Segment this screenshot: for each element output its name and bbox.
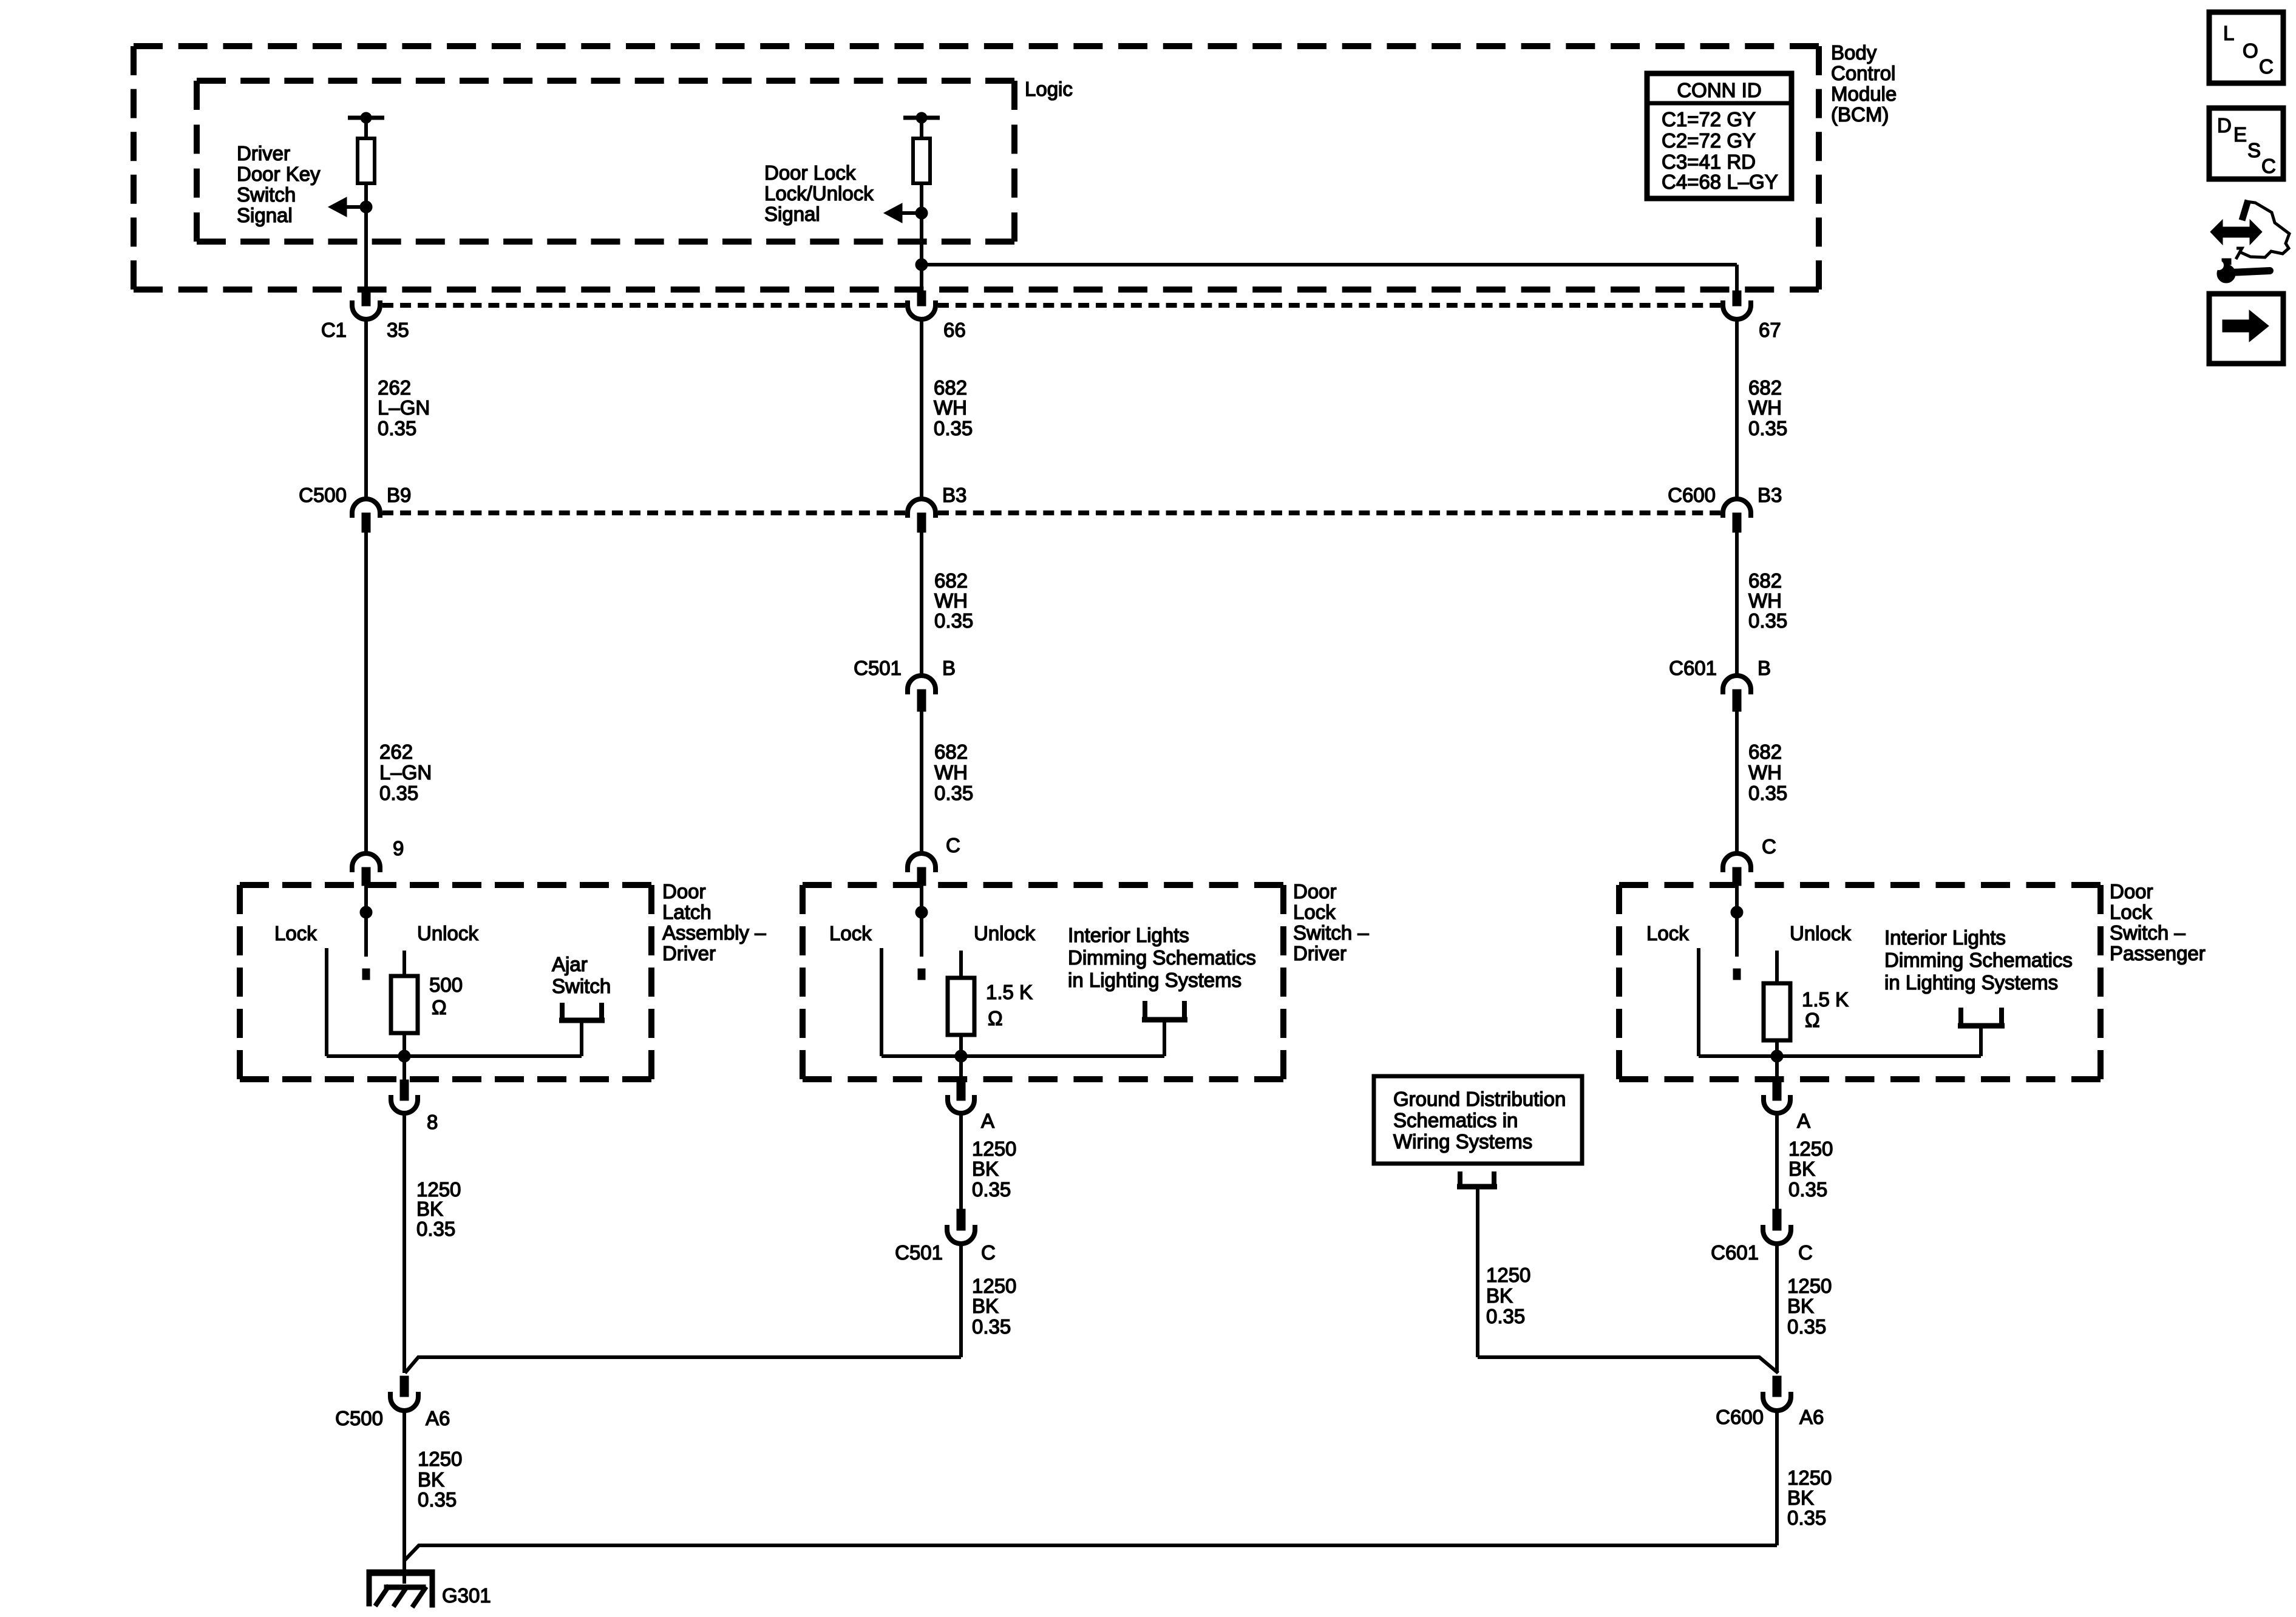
svg-text:0.35: 0.35 [934, 609, 973, 632]
svg-text:C601: C601 [1669, 657, 1717, 679]
svg-text:Unlock: Unlock [974, 922, 1035, 944]
svg-text:1250: 1250 [1486, 1264, 1530, 1286]
svg-text:Door Key: Door Key [237, 163, 321, 185]
svg-text:A: A [981, 1110, 994, 1132]
svg-text:Switch: Switch [552, 975, 611, 997]
svg-text:682: 682 [1748, 741, 1782, 763]
svg-text:1250: 1250 [1787, 1275, 1832, 1297]
svg-text:Passenger: Passenger [2110, 942, 2206, 964]
svg-text:WH: WH [1748, 396, 1782, 419]
svg-text:C501: C501 [895, 1241, 943, 1264]
svg-text:262: 262 [378, 376, 411, 399]
svg-text:C601: C601 [1711, 1241, 1759, 1264]
svg-text:L–GN: L–GN [379, 761, 432, 784]
svg-text:682: 682 [934, 376, 967, 399]
svg-text:Ground Distribution: Ground Distribution [1393, 1088, 1566, 1110]
svg-text:67: 67 [1759, 319, 1781, 341]
svg-text:Wiring Systems: Wiring Systems [1393, 1130, 1532, 1153]
svg-text:1250: 1250 [418, 1448, 462, 1470]
svg-text:0.35: 0.35 [418, 1488, 457, 1511]
svg-text:Lock/Unlock: Lock/Unlock [764, 182, 874, 205]
svg-text:in Lighting Systems: in Lighting Systems [1884, 971, 2058, 994]
svg-text:Unlock: Unlock [417, 922, 478, 944]
svg-text:0.35: 0.35 [378, 417, 416, 439]
svg-text:35: 35 [387, 319, 409, 341]
svg-text:1.5 K: 1.5 K [986, 981, 1033, 1003]
svg-text:BK: BK [972, 1295, 999, 1317]
svg-text:66: 66 [943, 319, 966, 341]
svg-text:0.35: 0.35 [1788, 1178, 1827, 1201]
svg-text:A6: A6 [426, 1407, 450, 1429]
svg-text:C: C [2261, 155, 2276, 177]
svg-text:in Lighting Systems: in Lighting Systems [1068, 969, 1241, 991]
svg-text:Lock: Lock [274, 922, 317, 944]
svg-text:Ω: Ω [432, 996, 447, 1019]
svg-text:0.35: 0.35 [1787, 1507, 1826, 1529]
svg-text:C: C [946, 834, 960, 856]
svg-text:682: 682 [934, 741, 968, 763]
svg-text:Ω: Ω [988, 1007, 1003, 1029]
svg-text:0.35: 0.35 [972, 1315, 1011, 1338]
svg-text:1250: 1250 [1788, 1137, 1833, 1160]
svg-text:WH: WH [934, 396, 967, 419]
svg-text:0.35: 0.35 [934, 417, 973, 439]
svg-text:CONN ID: CONN ID [1677, 79, 1761, 101]
svg-text:O: O [2243, 39, 2258, 62]
svg-text:C501: C501 [854, 657, 902, 679]
svg-text:BK: BK [972, 1158, 999, 1180]
svg-text:1250: 1250 [1787, 1466, 1832, 1489]
svg-text:0.35: 0.35 [379, 782, 418, 804]
svg-text:262: 262 [379, 741, 413, 763]
svg-text:Interior Lights: Interior Lights [1068, 924, 1189, 946]
svg-text:D: D [2217, 114, 2232, 137]
svg-text:G301: G301 [442, 1584, 491, 1607]
svg-text:Door: Door [2110, 880, 2153, 903]
svg-text:0.35: 0.35 [1787, 1315, 1826, 1338]
svg-text:Signal: Signal [237, 204, 293, 226]
svg-text:Lock: Lock [1293, 901, 1336, 923]
svg-text:E: E [2233, 123, 2247, 146]
svg-text:BK: BK [1787, 1295, 1814, 1317]
svg-text:Ajar: Ajar [552, 953, 588, 975]
svg-text:B: B [942, 657, 956, 679]
svg-text:A: A [1797, 1110, 1810, 1132]
svg-text:C: C [1762, 835, 1776, 858]
svg-text:Switch –: Switch – [2110, 921, 2186, 944]
svg-text:C: C [2259, 55, 2274, 78]
svg-text:1.5 K: 1.5 K [1802, 988, 1849, 1011]
svg-text:1250: 1250 [972, 1275, 1016, 1297]
svg-text:C1: C1 [321, 319, 347, 341]
svg-text:Door Lock: Door Lock [764, 161, 856, 184]
svg-text:Module: Module [1831, 83, 1897, 105]
svg-text:0.35: 0.35 [1486, 1305, 1525, 1327]
svg-text:682: 682 [934, 569, 968, 592]
svg-text:Lock: Lock [829, 922, 872, 944]
svg-text:Dimming Schematics: Dimming Schematics [1884, 949, 2073, 971]
svg-text:B: B [1758, 657, 1771, 679]
svg-text:Control: Control [1831, 62, 1895, 84]
svg-text:BK: BK [1787, 1486, 1814, 1509]
svg-text:C4=68 L–GY: C4=68 L–GY [1662, 171, 1778, 193]
svg-text:B3: B3 [1758, 484, 1782, 506]
svg-text:1250: 1250 [972, 1137, 1016, 1160]
svg-text:Assembly –: Assembly – [662, 921, 766, 944]
svg-text:500: 500 [429, 974, 463, 996]
svg-text:Dimming Schematics: Dimming Schematics [1068, 946, 1256, 969]
svg-text:C: C [1798, 1241, 1813, 1264]
svg-text:BK: BK [1788, 1158, 1815, 1180]
svg-text:682: 682 [1748, 569, 1782, 592]
svg-text:A6: A6 [1799, 1406, 1824, 1428]
svg-text:0.35: 0.35 [1748, 609, 1787, 632]
svg-text:C600: C600 [1716, 1406, 1764, 1428]
svg-text:C500: C500 [335, 1407, 383, 1429]
svg-text:C600: C600 [1668, 484, 1716, 506]
svg-text:BK: BK [418, 1468, 444, 1491]
svg-text:Ω: Ω [1805, 1009, 1820, 1031]
svg-text:Unlock: Unlock [1790, 922, 1851, 944]
svg-text:8: 8 [427, 1111, 438, 1133]
svg-text:Lock: Lock [1646, 922, 1689, 944]
svg-text:WH: WH [1748, 589, 1782, 612]
svg-text:L–GN: L–GN [378, 396, 430, 419]
svg-text:0.35: 0.35 [972, 1178, 1011, 1201]
svg-text:9: 9 [393, 837, 404, 859]
svg-text:Interior Lights: Interior Lights [1884, 926, 2006, 949]
svg-text:Body: Body [1831, 41, 1877, 64]
svg-text:L: L [2223, 22, 2234, 44]
svg-text:S: S [2247, 139, 2261, 161]
svg-text:WH: WH [934, 761, 968, 784]
svg-text:Driver: Driver [1293, 942, 1347, 964]
svg-text:B9: B9 [387, 484, 411, 506]
svg-text:Latch: Latch [662, 901, 712, 923]
svg-text:Driver: Driver [237, 142, 290, 164]
svg-text:WH: WH [934, 589, 968, 612]
svg-text:(BCM): (BCM) [1831, 103, 1889, 126]
svg-text:Switch –: Switch – [1293, 921, 1369, 944]
svg-text:Schematics in: Schematics in [1393, 1109, 1518, 1131]
svg-text:682: 682 [1748, 376, 1782, 399]
svg-text:BK: BK [1486, 1284, 1513, 1307]
svg-text:Driver: Driver [662, 942, 716, 964]
svg-text:WH: WH [1748, 761, 1782, 784]
svg-text:BK: BK [416, 1198, 443, 1220]
svg-text:0.35: 0.35 [1748, 782, 1787, 804]
svg-text:B3: B3 [942, 484, 966, 506]
svg-text:C: C [981, 1241, 996, 1264]
svg-text:C3=41 RD: C3=41 RD [1662, 151, 1756, 173]
svg-text:Door: Door [662, 880, 706, 903]
svg-text:Switch: Switch [237, 183, 296, 206]
svg-text:C500: C500 [299, 484, 347, 506]
svg-text:Logic: Logic [1025, 78, 1073, 100]
svg-text:Signal: Signal [764, 203, 820, 225]
svg-text:C1=72 GY: C1=72 GY [1662, 108, 1756, 131]
svg-text:Lock: Lock [2110, 901, 2152, 923]
svg-text:0.35: 0.35 [416, 1218, 455, 1240]
svg-text:0.35: 0.35 [1748, 417, 1787, 439]
svg-text:C2=72 GY: C2=72 GY [1662, 129, 1756, 152]
svg-text:Door: Door [1293, 880, 1337, 903]
svg-text:0.35: 0.35 [934, 782, 973, 804]
